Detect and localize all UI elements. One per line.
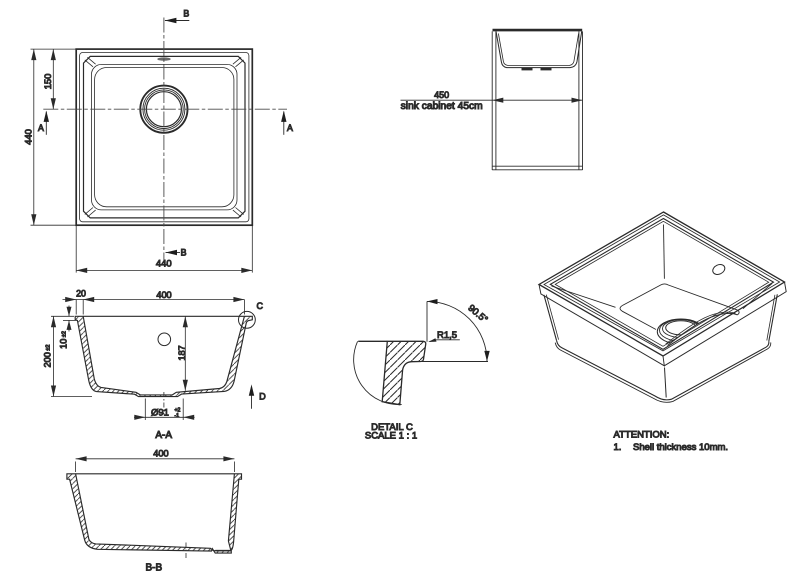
svg-text:Ø91: Ø91 <box>151 407 169 418</box>
svg-text:200 ±2: 200 ±2 <box>43 345 53 368</box>
svg-text:C: C <box>257 301 264 311</box>
svg-text:B: B <box>181 248 187 258</box>
svg-text:440: 440 <box>24 129 35 145</box>
svg-text:440: 440 <box>156 259 172 270</box>
svg-text:SCALE 1 : 1: SCALE 1 : 1 <box>365 431 417 442</box>
svg-text:sink cabinet 45cm: sink cabinet 45cm <box>401 101 483 112</box>
svg-text:A: A <box>287 123 293 133</box>
svg-text:R1,5: R1,5 <box>437 330 457 341</box>
svg-text:Shell thickness 10mm.: Shell thickness 10mm. <box>633 442 728 453</box>
svg-text:1.: 1. <box>614 442 622 453</box>
svg-text:400: 400 <box>156 290 171 300</box>
svg-text:A: A <box>38 123 44 133</box>
svg-text:150: 150 <box>43 74 54 90</box>
svg-text:400: 400 <box>153 448 168 458</box>
svg-text:B-B: B-B <box>145 563 162 574</box>
svg-text:A-A: A-A <box>155 430 172 441</box>
svg-text:20: 20 <box>76 289 86 299</box>
svg-text:B: B <box>183 8 189 18</box>
svg-text:187: 187 <box>177 345 187 360</box>
svg-text:450: 450 <box>434 90 449 100</box>
svg-text:90.5°: 90.5° <box>466 303 490 326</box>
svg-text:10 ±2: 10 ±2 <box>59 331 69 349</box>
svg-text:D: D <box>259 392 266 402</box>
svg-text:ATTENTION:: ATTENTION: <box>614 430 670 441</box>
svg-text:-1: -1 <box>175 413 180 419</box>
